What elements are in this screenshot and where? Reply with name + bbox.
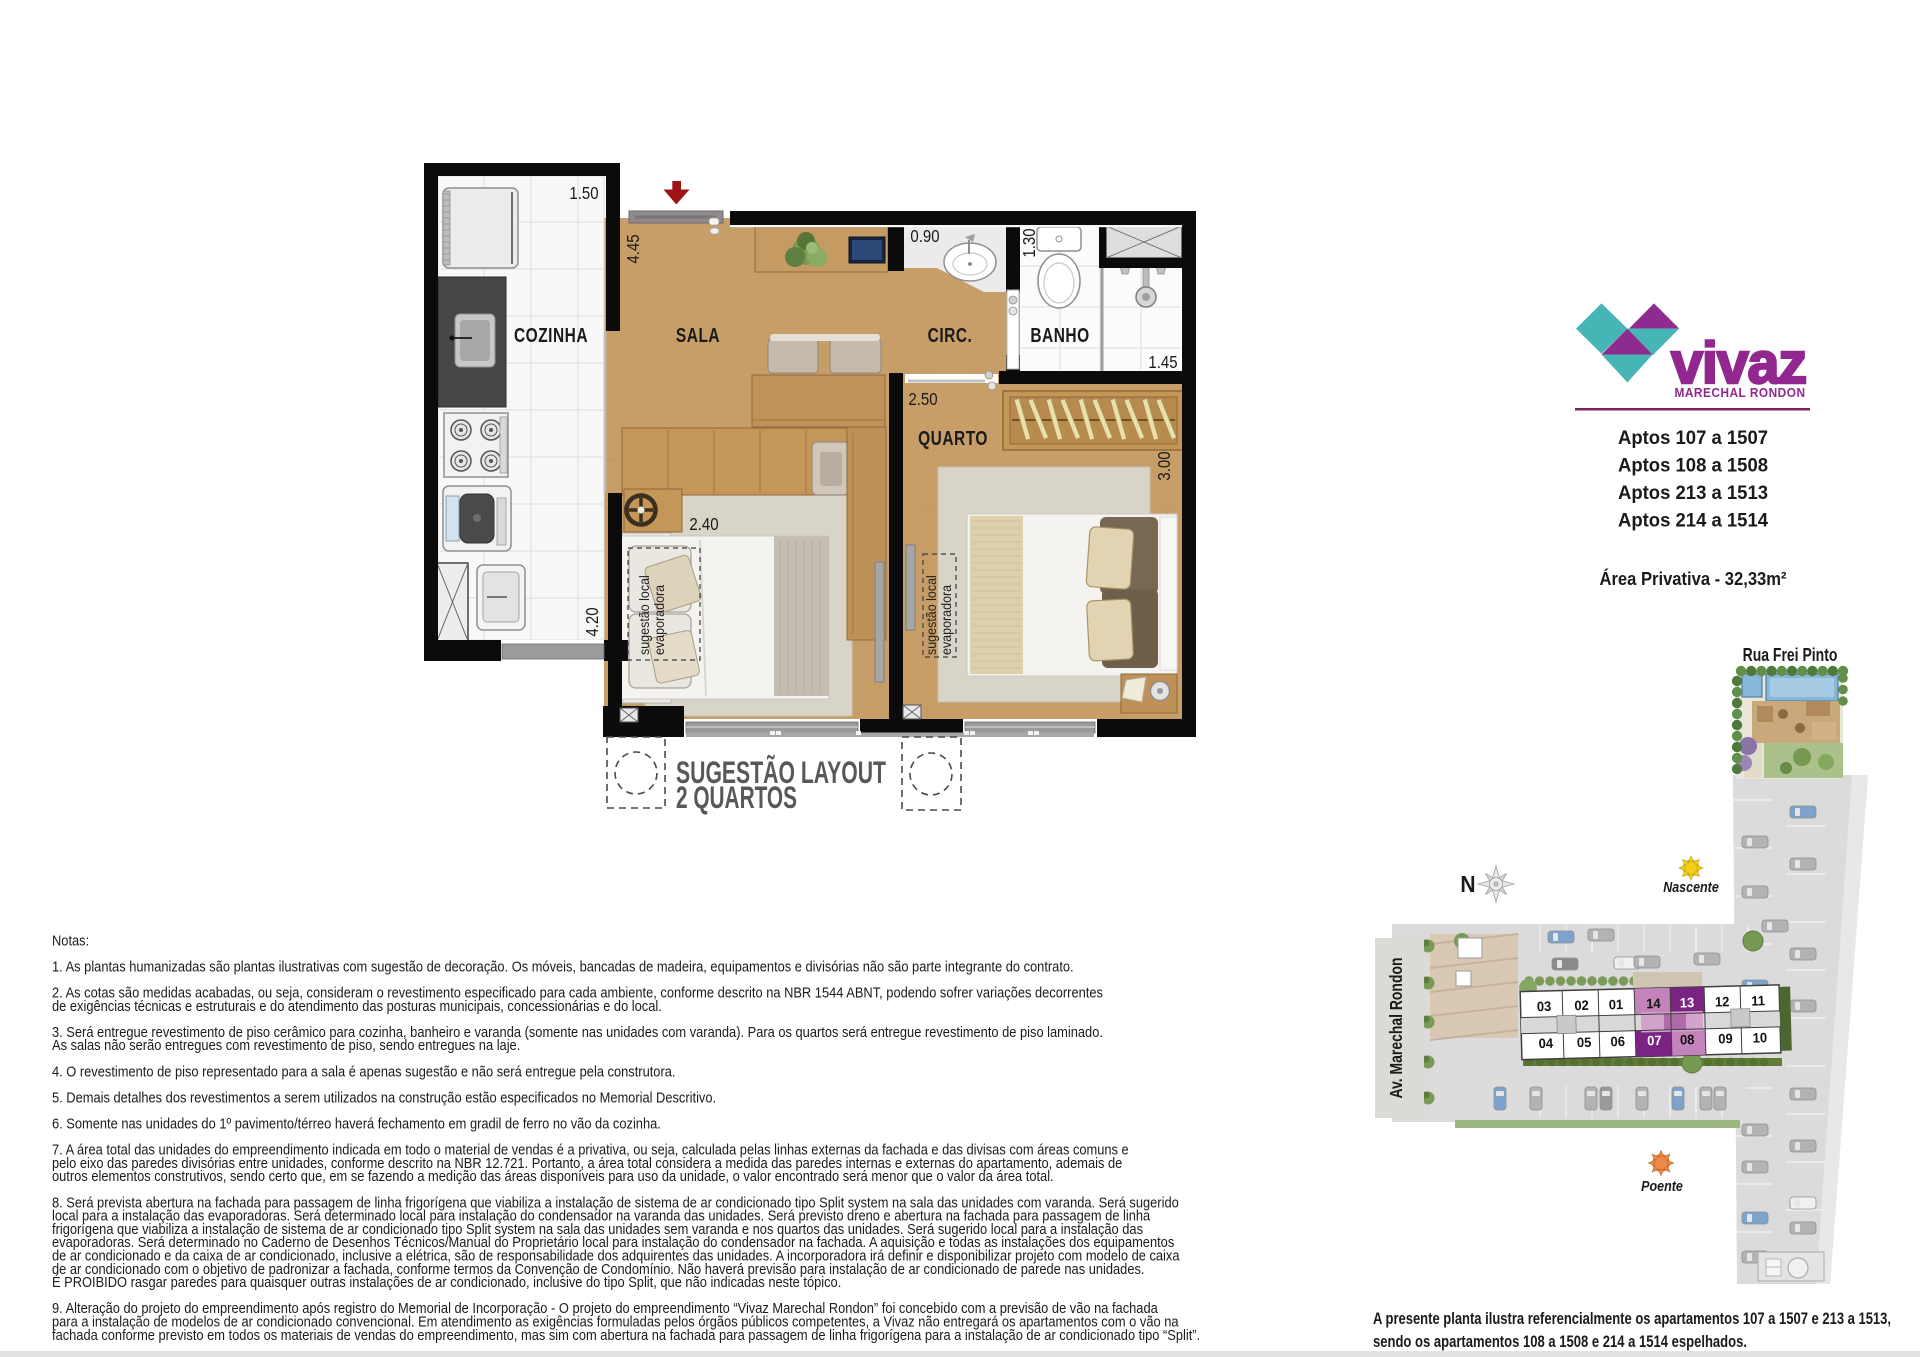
svg-text:Aptos 214 a 1514: Aptos 214 a 1514 xyxy=(1618,509,1768,531)
svg-text:4.20: 4.20 xyxy=(583,607,602,636)
svg-text:As salas não serão entregues c: As salas não serão entregues com revesti… xyxy=(52,1036,520,1053)
svg-text:13: 13 xyxy=(1680,995,1695,1011)
svg-text:de exigências técnicas e estru: de exigências técnicas e estruturais e d… xyxy=(52,997,662,1014)
svg-text:14: 14 xyxy=(1646,996,1661,1012)
svg-text:09: 09 xyxy=(1718,1031,1733,1047)
svg-text:Av. Marechal Rondon: Av. Marechal Rondon xyxy=(1387,958,1406,1099)
svg-text:CIRC.: CIRC. xyxy=(928,324,973,346)
svg-text:01: 01 xyxy=(1609,997,1624,1013)
svg-text:11: 11 xyxy=(1751,993,1766,1009)
svg-text:1. As plantas humanizadas são: 1. As plantas humanizadas são plantas il… xyxy=(52,958,1074,975)
svg-text:Aptos 108 a 1508: Aptos 108 a 1508 xyxy=(1618,454,1768,476)
svg-text:evaporadora: evaporadora xyxy=(651,584,667,655)
svg-text:02: 02 xyxy=(1574,998,1589,1014)
svg-text:6. Somente nas unidades do 1º: 6. Somente nas unidades do 1º pavimento/… xyxy=(52,1115,661,1132)
svg-text:1.30: 1.30 xyxy=(1020,228,1039,257)
svg-text:1.45: 1.45 xyxy=(1148,353,1177,372)
svg-text:03: 03 xyxy=(1537,999,1552,1015)
svg-text:05: 05 xyxy=(1577,1035,1592,1051)
svg-text:5. Demais detalhes dos revesti: 5. Demais detalhes dos revestimentos a s… xyxy=(52,1089,716,1106)
svg-text:04: 04 xyxy=(1538,1036,1553,1052)
svg-text:sugestão local: sugestão local xyxy=(923,575,939,655)
svg-text:A presente planta ilustra refe: A presente planta ilustra referencialmen… xyxy=(1373,1310,1891,1328)
svg-text:Rua Frei Pinto: Rua Frei Pinto xyxy=(1743,645,1838,665)
svg-text:1.50: 1.50 xyxy=(569,184,598,203)
svg-text:Área Privativa - 32,33m²: Área Privativa - 32,33m² xyxy=(1600,568,1788,589)
svg-text:Aptos 107 a 1507: Aptos 107 a 1507 xyxy=(1618,427,1768,449)
svg-text:10: 10 xyxy=(1752,1030,1767,1046)
svg-text:sugestão local: sugestão local xyxy=(636,575,652,655)
svg-text:MARECHAL RONDON: MARECHAL RONDON xyxy=(1675,385,1806,400)
svg-text:07: 07 xyxy=(1647,1033,1662,1049)
svg-text:evaporadora: evaporadora xyxy=(938,584,954,655)
svg-text:Poente: Poente xyxy=(1641,1178,1683,1194)
svg-text:sendo os apartamentos 108 a 15: sendo os apartamentos 108 a 1508 e 214 a… xyxy=(1373,1333,1747,1351)
svg-text:N: N xyxy=(1460,871,1475,897)
svg-text:BANHO: BANHO xyxy=(1030,324,1089,346)
svg-text:3.00: 3.00 xyxy=(1155,451,1174,480)
svg-text:2.50: 2.50 xyxy=(908,390,937,409)
svg-text:Aptos 213 a 1513: Aptos 213 a 1513 xyxy=(1618,482,1768,504)
svg-text:Notas:: Notas: xyxy=(52,932,89,949)
svg-text:4.45: 4.45 xyxy=(624,234,643,263)
svg-text:SALA: SALA xyxy=(676,324,720,346)
svg-text:COZINHA: COZINHA xyxy=(514,324,588,346)
svg-text:2.40: 2.40 xyxy=(689,515,718,534)
svg-text:outros elementos construtivos,: outros elementos construtivos, sendo cer… xyxy=(52,1167,1054,1184)
svg-text:06: 06 xyxy=(1610,1034,1625,1050)
svg-text:fachada conforme previsto em t: fachada conforme previsto em todos os ma… xyxy=(52,1326,1200,1343)
svg-text:Nascente: Nascente xyxy=(1663,879,1719,895)
svg-text:É PROIBIDO rasgar paredes para: É PROIBIDO rasgar paredes para quaisquer… xyxy=(52,1273,841,1290)
svg-text:4. O revestimento de piso repr: 4. O revestimento de piso representado p… xyxy=(52,1062,675,1079)
svg-text:0.90: 0.90 xyxy=(910,227,939,246)
svg-text:08: 08 xyxy=(1680,1032,1695,1048)
svg-text:QUARTO: QUARTO xyxy=(918,427,988,449)
svg-text:2 QUARTOS: 2 QUARTOS xyxy=(676,779,797,815)
svg-text:12: 12 xyxy=(1715,994,1730,1010)
